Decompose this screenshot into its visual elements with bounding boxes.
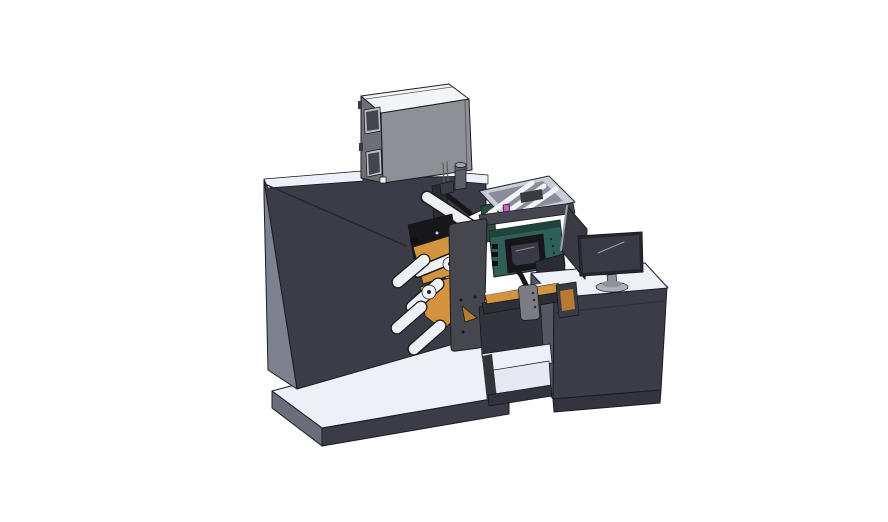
cabinet-top-band-right — [464, 173, 488, 184]
box-window-glass — [366, 110, 379, 131]
machine-assembly-render — [0, 0, 888, 522]
pendant-button — [532, 292, 535, 295]
spindle-axle — [427, 290, 431, 294]
mechanism-pulley — [410, 237, 418, 245]
monitor-screen — [581, 235, 640, 273]
box-indicator-square — [380, 177, 386, 183]
mechanism-glint — [436, 232, 439, 235]
print-unit-button — [492, 252, 498, 257]
monitor-base-top — [602, 281, 622, 288]
print-unit-vent — [552, 245, 554, 247]
print-unit-button — [492, 261, 498, 266]
cylinder-body — [455, 164, 466, 190]
pendant-button — [534, 306, 537, 309]
glass-enclosure — [479, 176, 575, 226]
print-unit-vent — [550, 238, 552, 240]
print-unit-button — [492, 244, 498, 249]
plate-bolt — [462, 331, 465, 334]
cad-render-viewport — [0, 0, 888, 522]
plate-bolt — [460, 299, 463, 302]
print-unit-vent — [553, 252, 555, 254]
conveyor-end-belt — [560, 289, 575, 311]
cylinder-cap — [455, 163, 466, 168]
box-hinge — [358, 101, 362, 109]
box-window-glass — [368, 152, 380, 175]
plate-bolt — [474, 296, 477, 299]
pendant-button — [533, 299, 536, 302]
vent-cylinder — [455, 163, 466, 191]
box-hinge — [359, 143, 363, 151]
pendant-body — [518, 284, 540, 321]
